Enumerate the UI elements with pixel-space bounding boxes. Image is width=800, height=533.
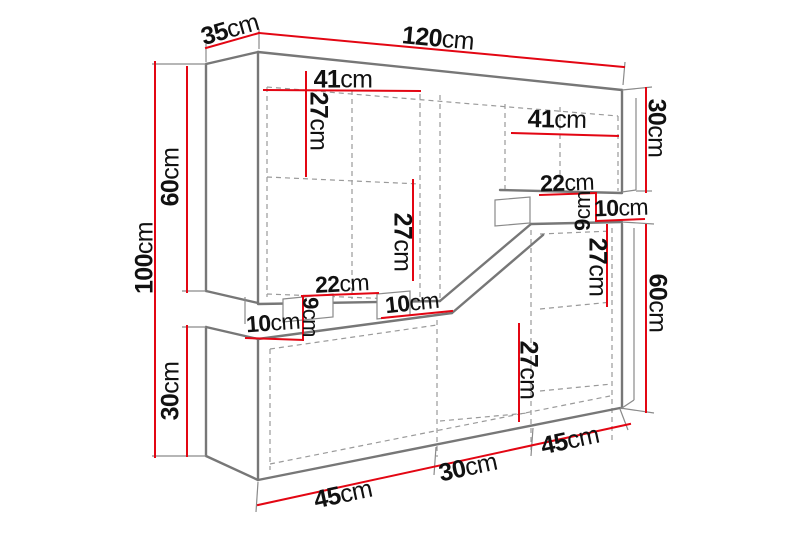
dim-label-upper-right-width-41: 41cm	[527, 107, 586, 133]
dim-label-left-lower-30: 30cm	[159, 362, 184, 421]
dim-label-upper-left-width-41: 41cm	[314, 68, 373, 93]
dim-label-right-lower-60: 60cm	[645, 274, 670, 333]
dim-label-mid-niche-9: 9cm	[299, 297, 321, 337]
dim-label-lower-mid-shelf-27: 27cm	[516, 341, 541, 400]
dim-label-mid-niche-22: 22cm	[315, 271, 370, 297]
furniture-dimension-diagram: 35cm 120cm 100cm 60cm 30cm 41cm 27cm 41c…	[0, 0, 800, 533]
dim-label-right-upper-30: 30cm	[644, 99, 669, 158]
dim-label-right-niche-9: 9cm	[572, 191, 594, 231]
dim-label-upper-left-shelf-27: 27cm	[306, 92, 331, 151]
dim-label-upper-left-lower-shelf-27: 27cm	[390, 213, 415, 272]
dim-label-left-niche-10: 10cm	[245, 310, 300, 337]
dim-label-width-120: 120cm	[401, 23, 475, 55]
dim-label-left-upper-60: 60cm	[159, 148, 184, 207]
dim-label-right-niche-10: 10cm	[594, 196, 649, 221]
dim-label-mid-niche-10: 10cm	[384, 289, 440, 318]
dim-label-height-100: 100cm	[133, 222, 158, 294]
dim-label-lower-right-shelf-27: 27cm	[585, 238, 610, 297]
